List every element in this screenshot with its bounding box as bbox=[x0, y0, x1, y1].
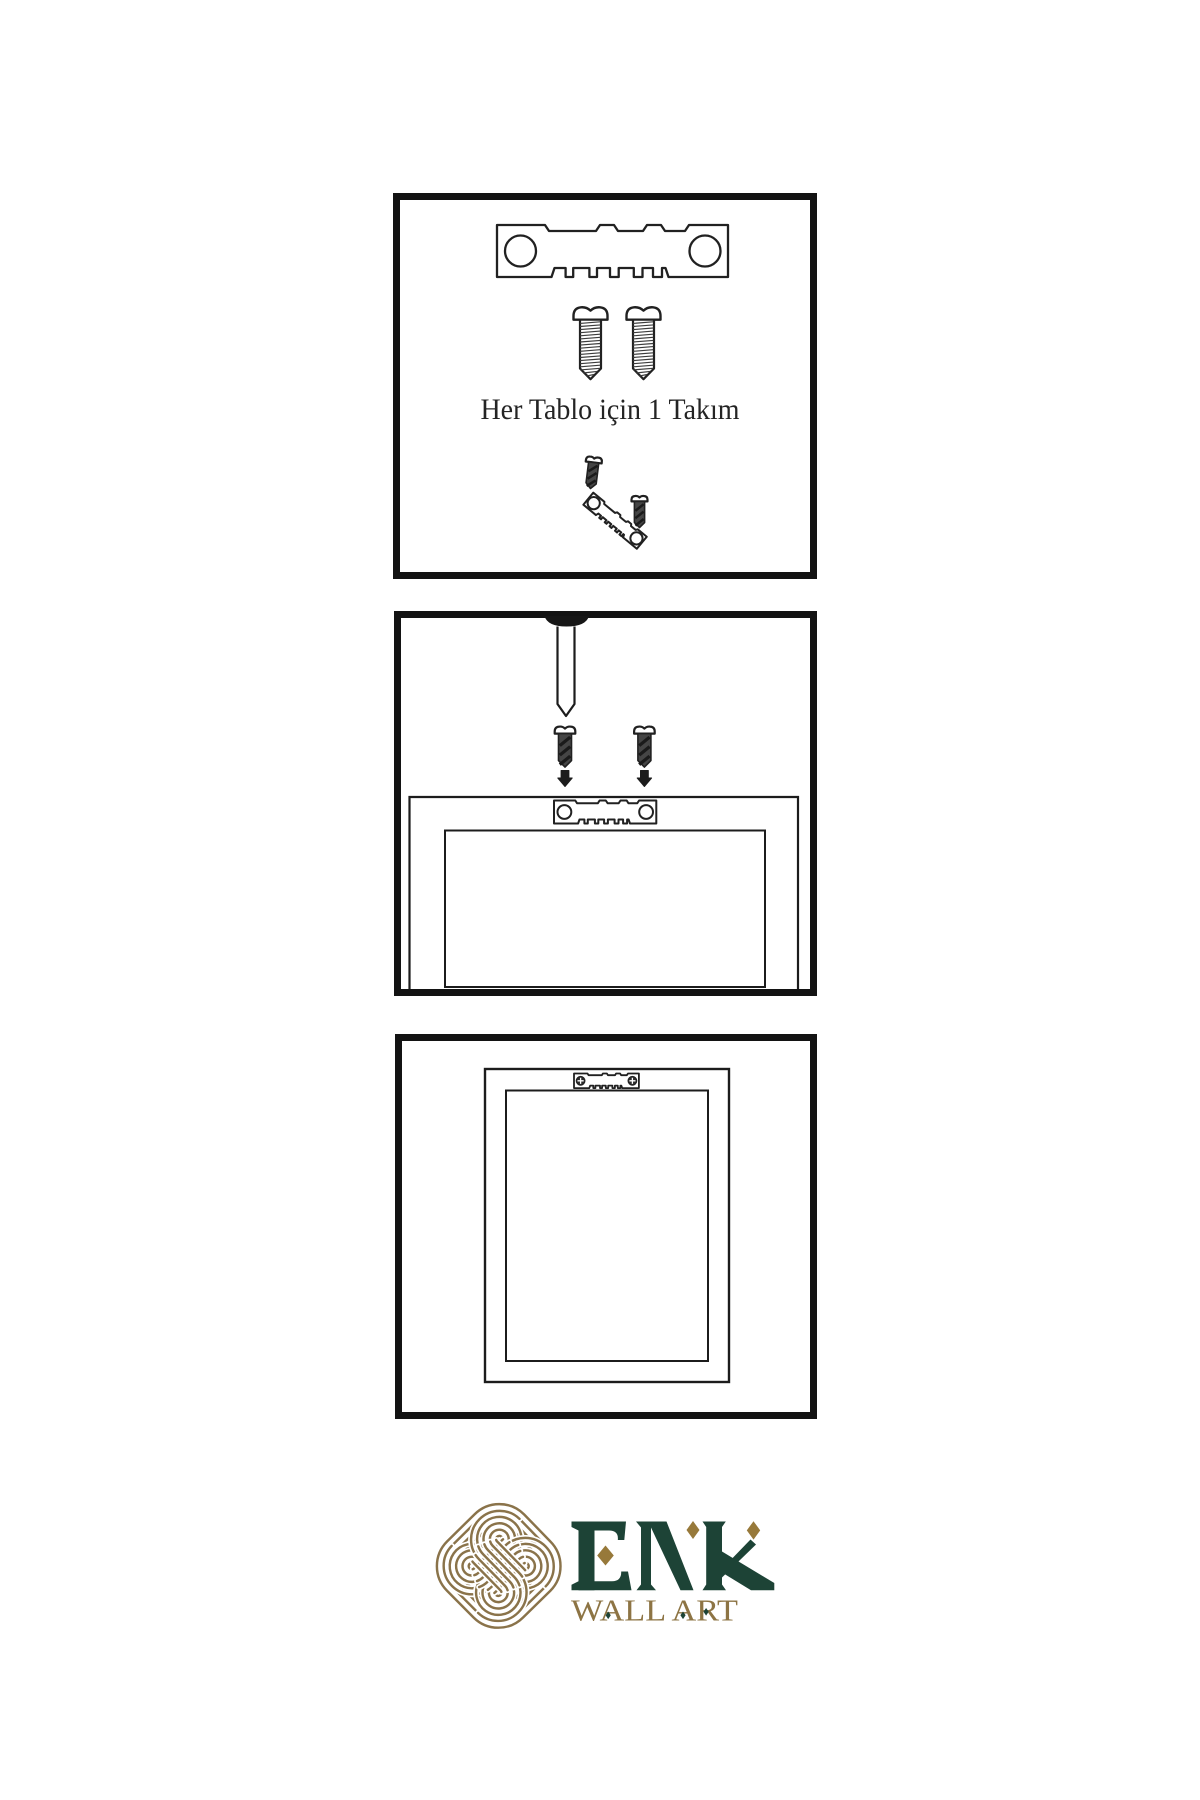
svg-text:Her Tablo için 1 Takım: Her Tablo için 1 Takım bbox=[481, 393, 740, 426]
svg-text:WALL ART: WALL ART bbox=[571, 1594, 738, 1628]
